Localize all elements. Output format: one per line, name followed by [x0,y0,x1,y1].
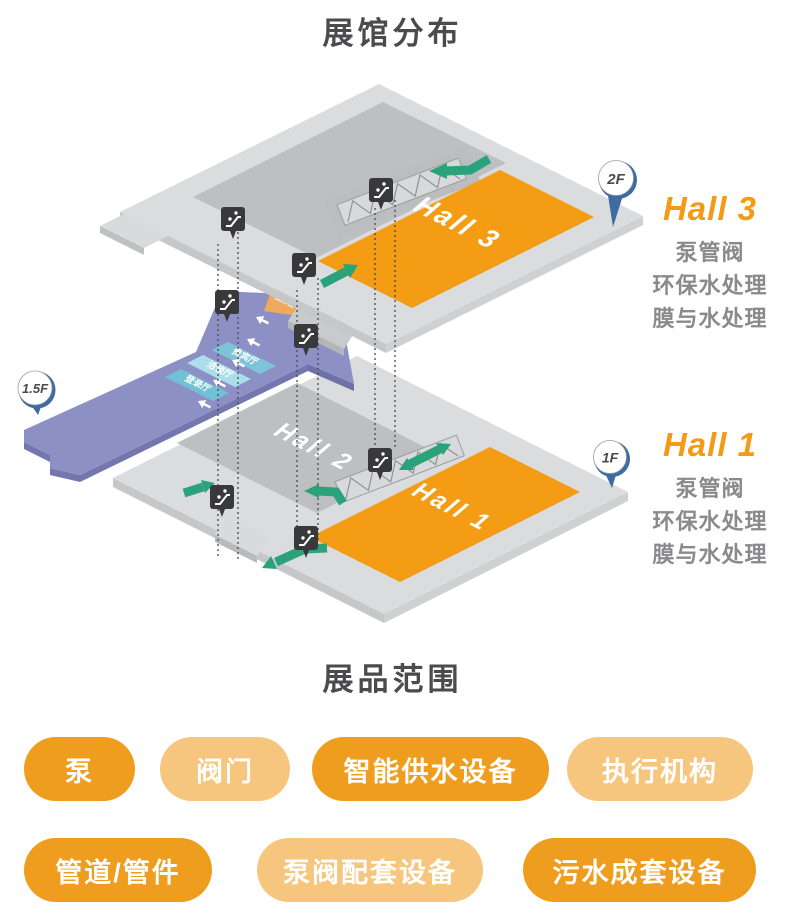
hall3-legend-line: 膜与水处理 [634,302,785,335]
product-tag-valve: 阀门 [160,737,290,801]
hall1-legend-title: Hall 1 [634,426,785,464]
poster: 展馆分布 Hall 2 Hall 1 [0,0,785,913]
pin-1-5f-label: 1.5F [22,381,49,396]
pin-2f-label: 2F [606,171,625,188]
hall1-legend: Hall 1 泵管阀 环保水处理 膜与水处理 [634,426,785,571]
hall3-legend: Hall 3 泵管阀 环保水处理 膜与水处理 [634,190,785,335]
products-section-title: 展品范围 [0,654,785,699]
pin-1-5f: 1.5F [18,371,56,415]
product-tag-sewage-equipment: 污水成套设备 [523,838,756,902]
hall1-legend-line: 膜与水处理 [634,538,785,571]
product-tag-actuator: 执行机构 [567,737,753,801]
product-tag-pump: 泵 [24,737,135,801]
product-tag-pipes-fittings: 管道/管件 [24,838,212,902]
pin-1f-label: 1F [602,450,619,466]
product-tag-pump-valve-accessories: 泵阀配套设备 [257,838,483,902]
hall1-legend-line: 环保水处理 [634,505,785,538]
floor-2f: Hall 3 [100,84,643,353]
hall3-legend-line: 泵管阀 [634,236,785,269]
product-tag-smart-water-supply: 智能供水设备 [312,737,549,801]
hall1-legend-line: 泵管阀 [634,472,785,505]
hall3-legend-line: 环保水处理 [634,269,785,302]
hall3-legend-title: Hall 3 [634,190,785,228]
